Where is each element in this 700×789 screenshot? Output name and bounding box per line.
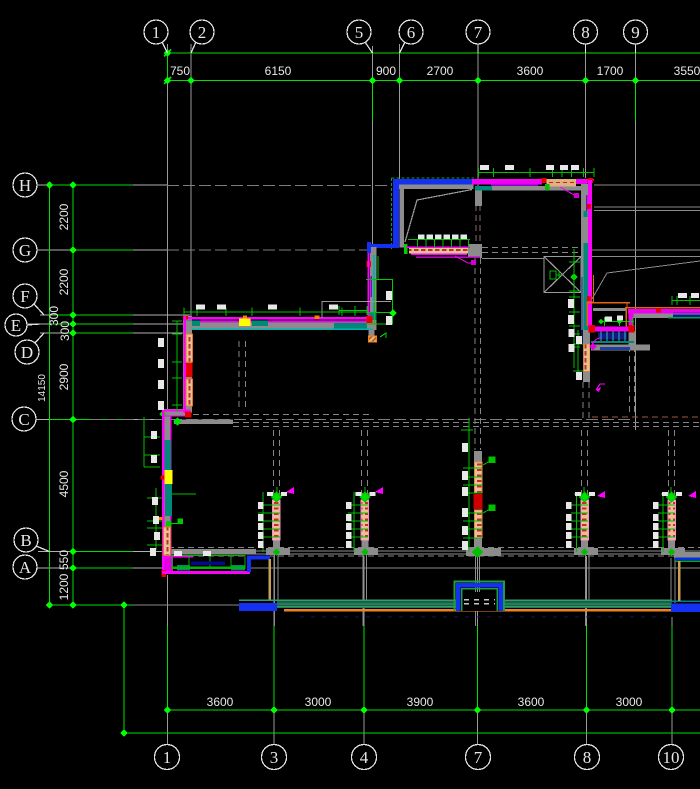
svg-text:14150: 14150 bbox=[37, 374, 48, 402]
svg-text:2: 2 bbox=[198, 23, 207, 42]
svg-text:2200: 2200 bbox=[57, 203, 71, 230]
svg-text:1700: 1700 bbox=[597, 64, 624, 78]
svg-text:2700: 2700 bbox=[427, 64, 454, 78]
svg-text:2200: 2200 bbox=[57, 268, 71, 295]
svg-text:3550: 3550 bbox=[674, 64, 700, 78]
svg-text:1: 1 bbox=[152, 23, 161, 42]
svg-text:4500: 4500 bbox=[57, 470, 71, 497]
svg-text:9: 9 bbox=[631, 23, 640, 42]
svg-text:3600: 3600 bbox=[207, 695, 234, 709]
svg-text:D: D bbox=[21, 343, 33, 362]
svg-text:G: G bbox=[19, 241, 31, 260]
svg-text:C: C bbox=[18, 410, 29, 429]
svg-text:300: 300 bbox=[58, 321, 72, 341]
svg-text:A: A bbox=[19, 558, 32, 577]
svg-text:5: 5 bbox=[355, 23, 364, 42]
svg-text:7: 7 bbox=[474, 23, 483, 42]
svg-text:10: 10 bbox=[663, 748, 680, 767]
svg-text:F: F bbox=[20, 287, 29, 306]
svg-text:H: H bbox=[19, 176, 31, 195]
svg-text:3900: 3900 bbox=[407, 695, 434, 709]
svg-text:B: B bbox=[20, 531, 31, 550]
svg-text:1: 1 bbox=[163, 748, 172, 767]
svg-text:6: 6 bbox=[407, 23, 416, 42]
svg-text:2900: 2900 bbox=[57, 363, 71, 390]
svg-text:900: 900 bbox=[376, 64, 396, 78]
svg-text:550: 550 bbox=[57, 550, 71, 570]
svg-text:3000: 3000 bbox=[305, 695, 332, 709]
svg-text:3000: 3000 bbox=[616, 695, 643, 709]
svg-text:8: 8 bbox=[583, 748, 592, 767]
svg-text:E: E bbox=[11, 316, 21, 335]
svg-text:4: 4 bbox=[360, 748, 369, 767]
svg-text:7: 7 bbox=[474, 748, 483, 767]
svg-text:3600: 3600 bbox=[518, 695, 545, 709]
svg-text:3600: 3600 bbox=[517, 64, 544, 78]
svg-text:750: 750 bbox=[170, 64, 190, 78]
svg-text:6150: 6150 bbox=[265, 64, 292, 78]
svg-text:8: 8 bbox=[581, 23, 590, 42]
svg-text:1200: 1200 bbox=[57, 573, 71, 600]
svg-text:3: 3 bbox=[270, 748, 279, 767]
